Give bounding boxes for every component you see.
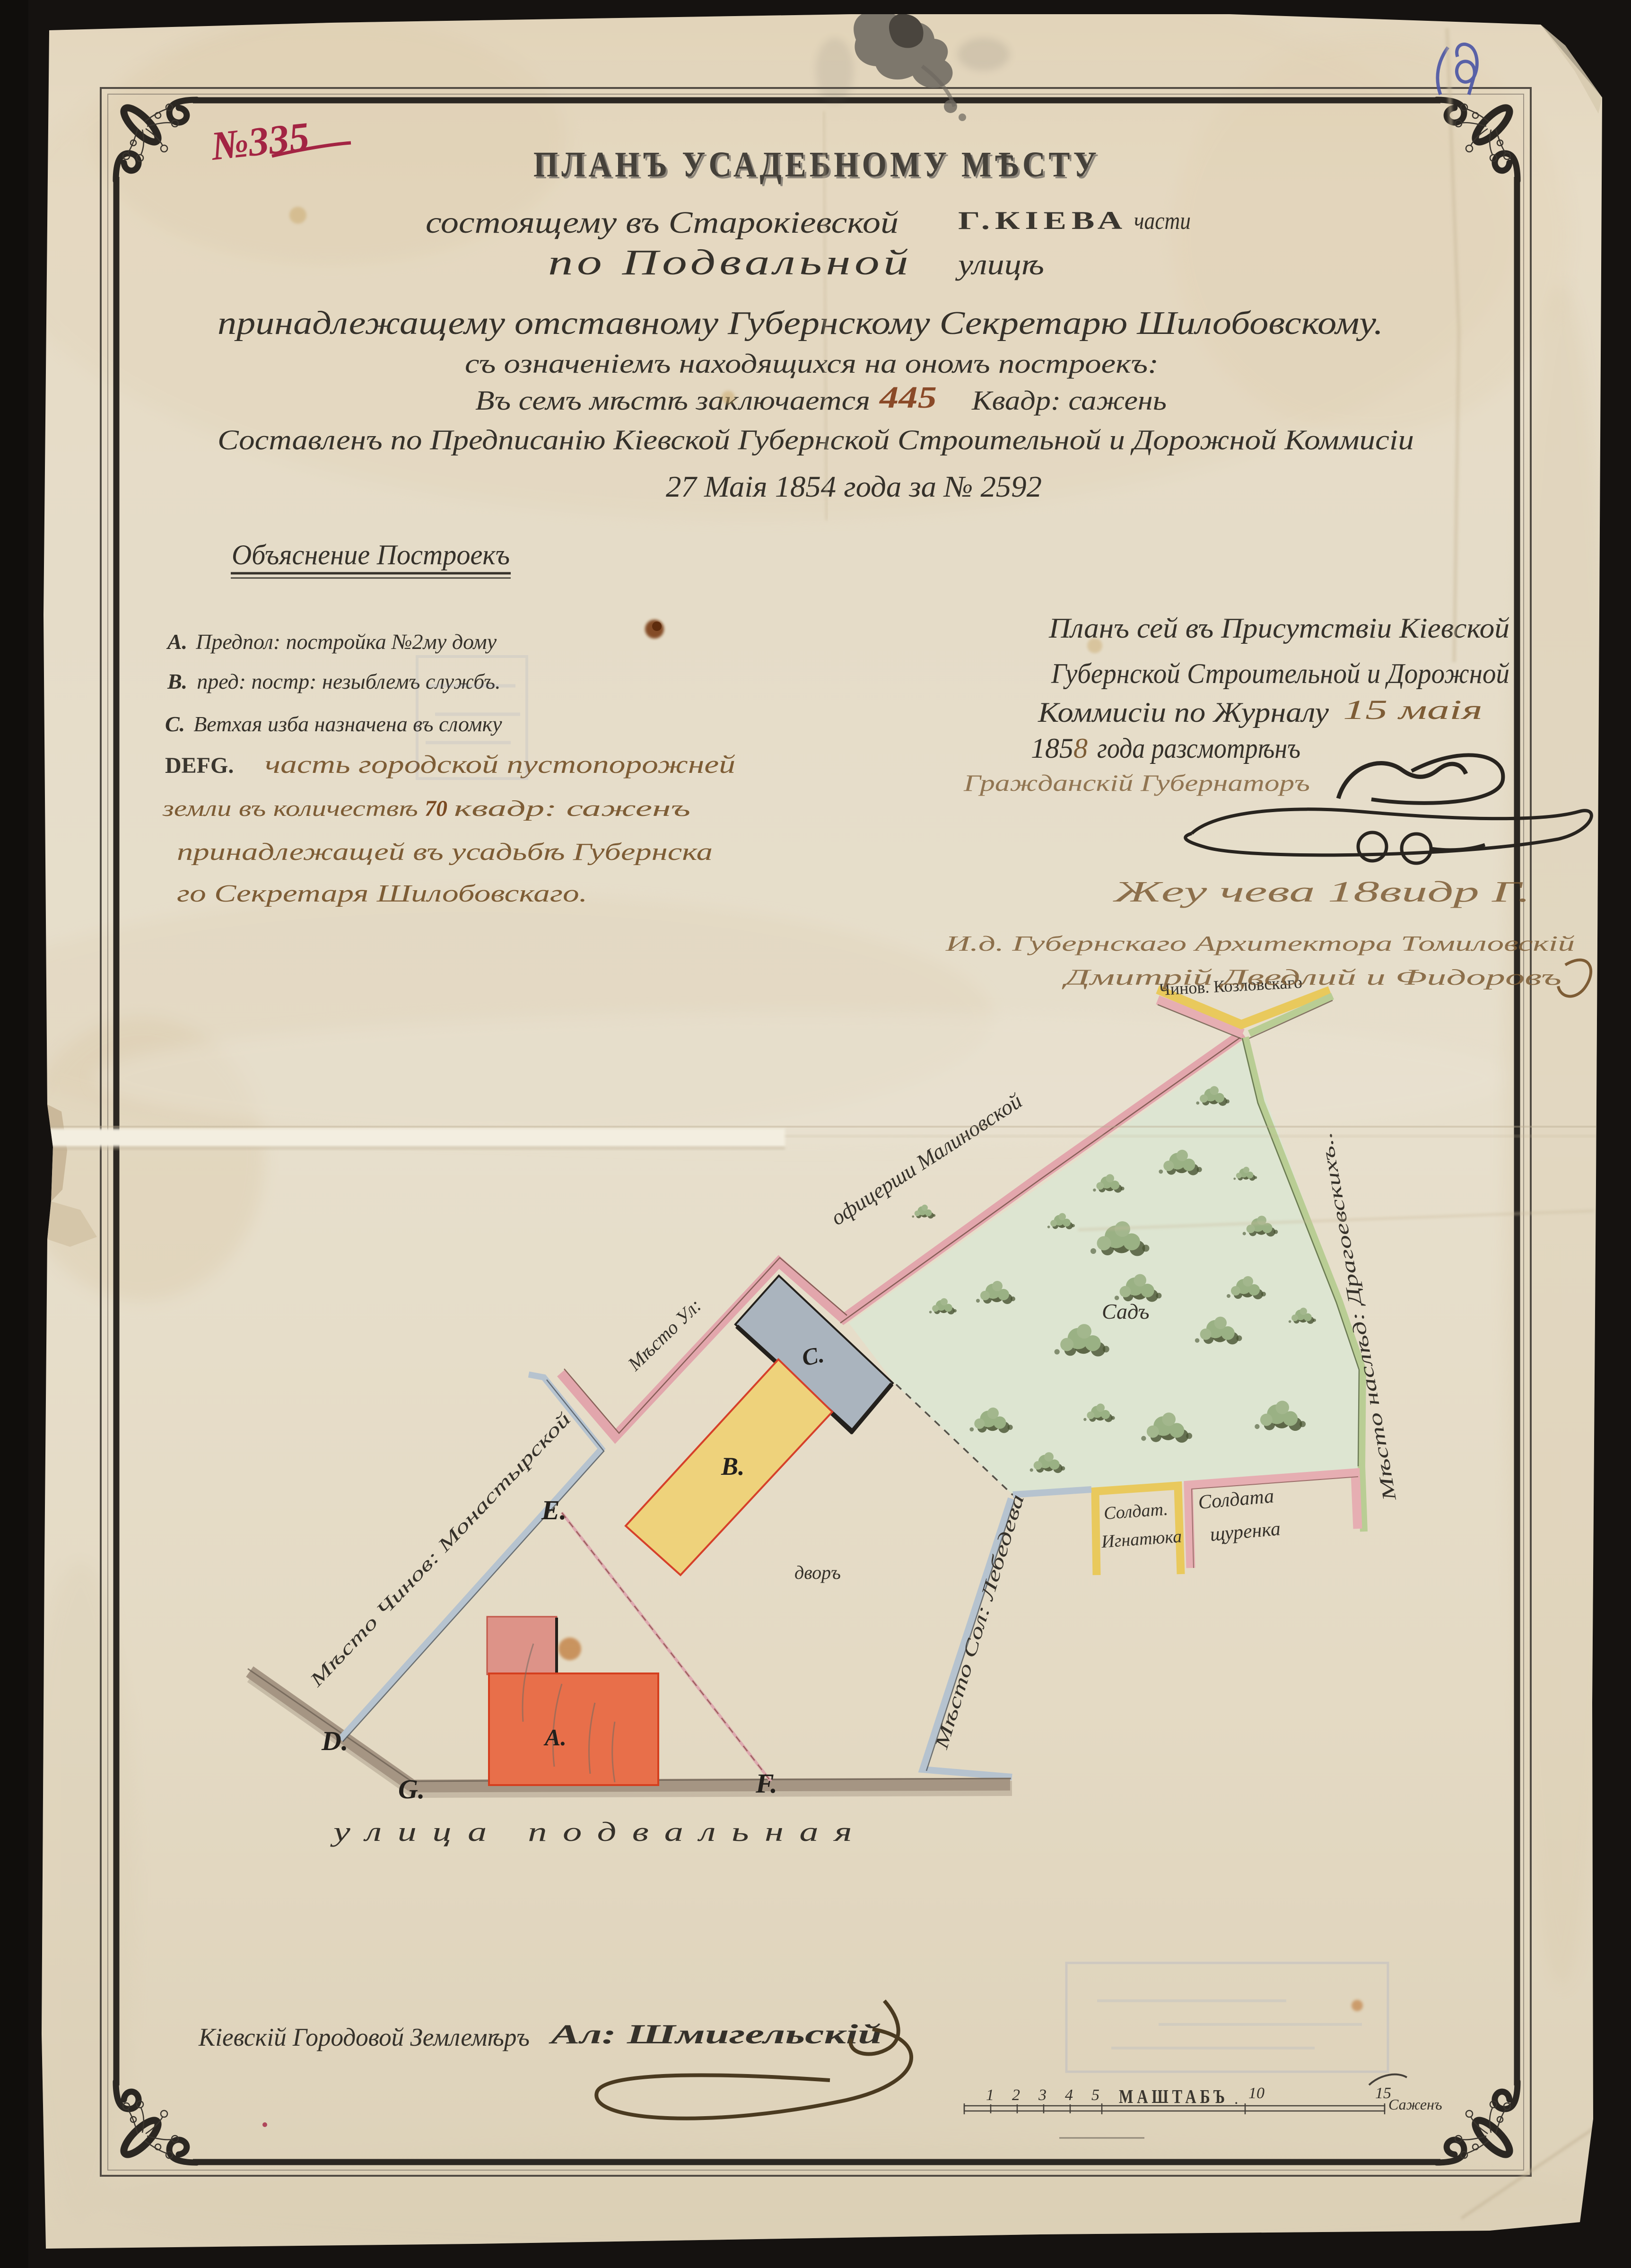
svg-text:принадлежащему отставному Губе: принадлежащему отставному Губернскому Се… bbox=[218, 305, 1383, 342]
svg-text:съ означеніемъ находящихся на: съ означеніемъ находящихся на ономъ пост… bbox=[465, 348, 1159, 379]
svg-text:3: 3 bbox=[1038, 2086, 1047, 2104]
svg-text:В.пред: постр: незыблемъ служб: В.пред: постр: незыблемъ службъ. bbox=[167, 669, 501, 693]
svg-text:Жеу чева 18видр Г.: Жеу чева 18видр Г. bbox=[1112, 876, 1530, 908]
svg-text:15 маія: 15 маія bbox=[1343, 694, 1483, 725]
svg-text:Саженъ: Саженъ bbox=[1388, 2096, 1442, 2113]
svg-text:принадлежащей въ усадьбѣ Губер: принадлежащей въ усадьбѣ Губернска bbox=[177, 839, 713, 866]
svg-text:Объяснение Построекъ: Объяснение Построекъ bbox=[232, 539, 510, 570]
svg-text:МАШТАБЪ: МАШТАБЪ bbox=[1119, 2085, 1229, 2107]
svg-text:Квадр: сажень: Квадр: сажень bbox=[971, 385, 1167, 416]
svg-text:часть городской пустопорожней: часть городской пустопорожней bbox=[265, 750, 735, 779]
svg-text:Садъ: Садъ bbox=[1102, 1299, 1150, 1323]
svg-text:улицѣ: улицѣ bbox=[955, 249, 1044, 281]
svg-text:Г.КІЕВА: Г.КІЕВА bbox=[958, 206, 1127, 235]
svg-text:Коммисіи по Журналу: Коммисіи по Журналу bbox=[1038, 697, 1329, 728]
svg-text:части: части bbox=[1134, 208, 1191, 235]
svg-text:ПЛАНЪ УСАДЕБНОМУ МѢСТУ: ПЛАНЪ УСАДЕБНОМУ МѢСТУ bbox=[533, 145, 1100, 184]
svg-text:27 Маія 1854 года за № 2592: 27 Маія 1854 года за № 2592 bbox=[666, 470, 1042, 503]
svg-text:го Секретаря Шилобовскаго.: го Секретаря Шилобовскаго. bbox=[177, 880, 587, 907]
svg-text:по Подвальной: по Подвальной bbox=[548, 243, 912, 282]
svg-text:Дмитрій Дведлий и Фидоровъ: Дмитрій Дведлий и Фидоровъ bbox=[1062, 965, 1561, 990]
svg-text:F.: F. bbox=[755, 1768, 777, 1799]
svg-text:улица подвальная: улица подвальная bbox=[330, 1816, 868, 1847]
svg-text:E.: E. bbox=[541, 1495, 567, 1525]
svg-text:G.: G. bbox=[398, 1774, 425, 1804]
svg-text:дворъ: дворъ bbox=[794, 1562, 841, 1583]
svg-text:И.д. Губернскаго Архитектора Т: И.д. Губернскаго Архитектора Томиловскій bbox=[945, 931, 1575, 955]
svg-text:445: 445 bbox=[879, 380, 937, 415]
svg-text:1: 1 bbox=[986, 2086, 994, 2104]
svg-text:2: 2 bbox=[1012, 2086, 1020, 2104]
svg-text:Составленъ по Предписанію Кіев: Составленъ по Предписанію Кіевской Губер… bbox=[218, 424, 1414, 455]
svg-text:Гражданскій Губернаторъ: Гражданскій Губернаторъ bbox=[963, 770, 1310, 796]
svg-text:DEFG.: DEFG. bbox=[165, 753, 234, 778]
svg-text:Кіевскій Городовой Землемѣръ: Кіевскій Городовой Землемѣръ bbox=[198, 2023, 530, 2051]
svg-text:Ал: Шмигельскій: Ал: Шмигельскій bbox=[549, 2019, 882, 2049]
svg-text:земли въ количествѣ70квадр: са: земли въ количествѣ70квадр: саженъ bbox=[162, 796, 690, 821]
svg-text:10: 10 bbox=[1248, 2084, 1265, 2102]
svg-text:1858года разсмотрѣнъ: 1858года разсмотрѣнъ bbox=[1031, 733, 1300, 764]
svg-text:состоящему въ Старокіевской: состоящему въ Старокіевской bbox=[426, 205, 898, 240]
svg-text:Губернской Строительной и Доро: Губернской Строительной и Дорожной bbox=[1051, 658, 1509, 689]
svg-text:D.: D. bbox=[321, 1725, 348, 1756]
svg-text:А.Предпол: постройка №2му дому: А.Предпол: постройка №2му дому bbox=[166, 630, 497, 654]
svg-text:B.: B. bbox=[721, 1452, 745, 1480]
svg-text:4: 4 bbox=[1065, 2086, 1073, 2104]
svg-text:A.: A. bbox=[543, 1724, 567, 1751]
svg-text:Въ семъ мѣстѣ заключается: Въ семъ мѣстѣ заключается bbox=[475, 385, 870, 416]
svg-text:5: 5 bbox=[1091, 2086, 1099, 2104]
svg-text:.: . bbox=[1234, 2090, 1239, 2108]
svg-text:Планъ сей въ Присутствіи Кіевс: Планъ сей въ Присутствіи Кіевской bbox=[1048, 613, 1509, 644]
